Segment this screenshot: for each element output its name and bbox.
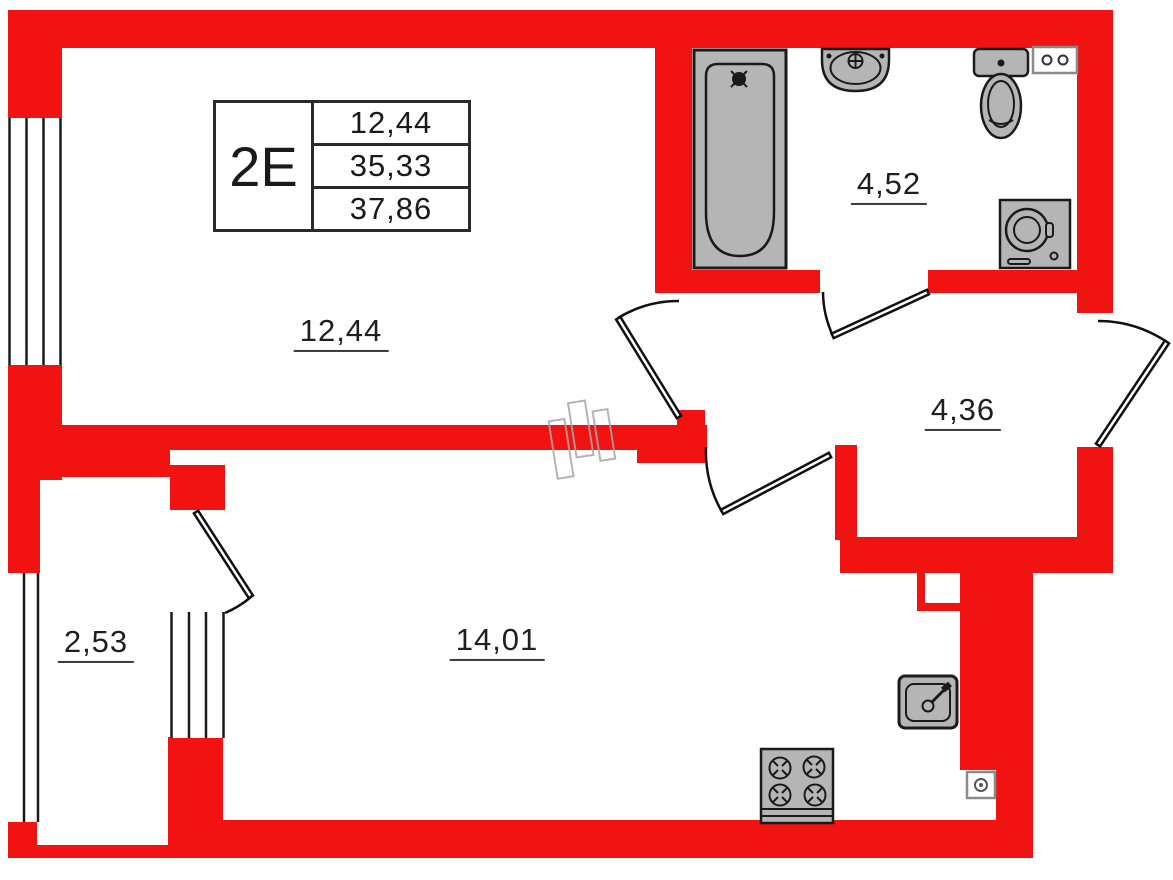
window-left-wall — [8, 118, 62, 365]
stove-icon — [761, 749, 833, 823]
vent-box-icon — [967, 772, 995, 798]
bathtub-icon — [694, 50, 786, 268]
door-hall-kitchen — [706, 447, 831, 514]
washbasin-icon — [822, 49, 889, 91]
unit-usable-area-value: 35,33 — [314, 146, 468, 189]
unit-areas: 12,44 35,33 37,86 — [314, 103, 468, 229]
unit-living-area-value: 12,44 — [314, 103, 468, 146]
unit-info-card: 2E 12,44 35,33 37,86 — [213, 100, 471, 232]
balcony-glazing — [24, 573, 38, 822]
hall-area-label: 4,36 — [925, 393, 1001, 431]
door-entry — [1096, 321, 1169, 446]
floor-plan-drawing — [0, 0, 1173, 880]
bathroom-area-label: 4,52 — [851, 167, 927, 205]
unit-type-label: 2E — [216, 103, 314, 229]
door-balcony — [194, 511, 253, 613]
floor-plan: 12,44 4,52 4,36 2,53 14,01 2E 12,44 35,3… — [0, 0, 1173, 880]
living-room-area-label: 12,44 — [294, 314, 389, 352]
balcony-area-label: 2,53 — [58, 625, 134, 663]
toilet-icon — [974, 49, 1028, 138]
door-bathroom — [823, 290, 929, 338]
kitchen-living-area-label: 14,01 — [450, 623, 545, 661]
unit-total-area-value: 37,86 — [314, 189, 468, 229]
wall-outlet-box-icon — [1033, 47, 1077, 73]
washing-machine-icon — [1000, 200, 1070, 268]
kitchen-sink-icon — [899, 676, 957, 728]
door-living-room — [616, 301, 681, 418]
window-balcony-wall — [170, 612, 225, 738]
